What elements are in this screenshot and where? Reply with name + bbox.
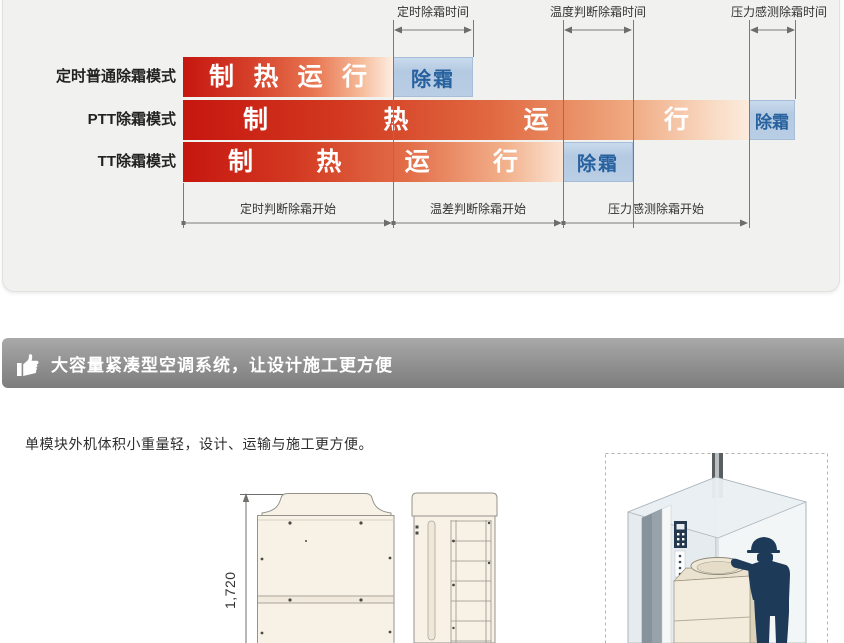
thumbs-up-icon [14, 348, 42, 378]
section-title: 大容量紧凑型空调系统，让设计施工更方便 [51, 351, 393, 376]
unit-drawings [0, 450, 844, 643]
elevator-illustration [606, 453, 828, 643]
section-header-bar: 大容量紧凑型空调系统，让设计施工更方便 [2, 338, 844, 388]
side-view-drawing [412, 493, 497, 643]
diagram-lines [0, 0, 844, 245]
product-page: 定时除霜时间 温度判断除霜时间 压力感测除霜时间 定时普通除霜模式 PTT除霜模… [0, 0, 844, 643]
front-view-drawing [258, 494, 395, 643]
